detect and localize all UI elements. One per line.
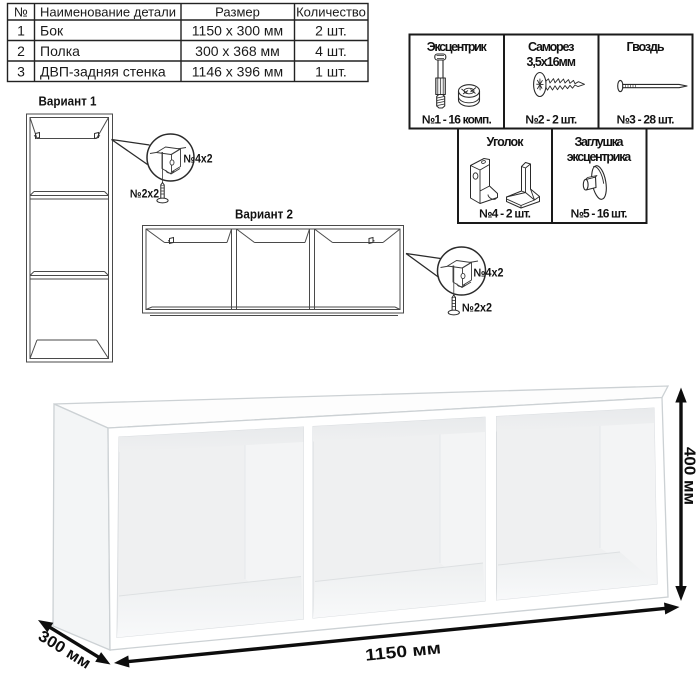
svg-text:Наименование детали: Наименование детали [40, 5, 176, 20]
svg-text:Саморез: Саморез [528, 40, 575, 54]
svg-text:эксцентрика: эксцентрика [567, 150, 633, 164]
svg-text:Вариант 2: Вариант 2 [235, 208, 293, 222]
svg-text:1146 х 396 мм: 1146 х 396 мм [192, 64, 283, 80]
svg-text:Заглушка: Заглушка [575, 135, 625, 149]
svg-text:Размер: Размер [215, 5, 260, 20]
svg-text:№: № [14, 5, 28, 20]
svg-text:1150 х 300 мм: 1150 х 300 мм [192, 23, 283, 39]
svg-text:2: 2 [17, 43, 25, 59]
svg-text:Количество: Количество [296, 5, 366, 20]
svg-text:№4х2: №4х2 [184, 154, 213, 166]
svg-text:№2 - 2 шт.: №2 - 2 шт. [525, 113, 577, 127]
svg-text:№5 - 16 шт.: №5 - 16 шт. [571, 207, 628, 221]
svg-text:1: 1 [17, 23, 25, 39]
svg-text:Гвоздь: Гвоздь [627, 40, 665, 54]
svg-text:300 х 368 мм: 300 х 368 мм [195, 43, 280, 59]
svg-text:№3 - 28 шт.: №3 - 28 шт. [617, 113, 675, 127]
svg-text:4 шт.: 4 шт. [315, 43, 347, 59]
svg-text:Вариант 1: Вариант 1 [39, 95, 97, 109]
svg-text:№4 - 2 шт.: №4 - 2 шт. [479, 207, 531, 221]
svg-text:Эксцентрик: Эксцентрик [427, 40, 488, 54]
svg-text:ДВП-задняя стенка: ДВП-задняя стенка [40, 64, 166, 80]
svg-text:3: 3 [17, 64, 25, 80]
svg-text:3,5х16мм: 3,5х16мм [526, 55, 576, 69]
svg-text:2 шт.: 2 шт. [315, 23, 347, 39]
svg-text:400 мм: 400 мм [681, 447, 698, 505]
svg-text:Полка: Полка [40, 43, 80, 59]
svg-text:Уголок: Уголок [487, 135, 525, 149]
svg-text:№2х2: №2х2 [130, 189, 159, 201]
svg-text:Бок: Бок [40, 23, 64, 39]
svg-text:№4х2: №4х2 [474, 268, 504, 280]
svg-text:1150 мм: 1150 мм [364, 639, 441, 664]
svg-text:№2х2: №2х2 [462, 303, 492, 315]
svg-text:№1 - 16 комп.: №1 - 16 комп. [422, 113, 492, 127]
svg-text:1 шт.: 1 шт. [315, 64, 347, 80]
